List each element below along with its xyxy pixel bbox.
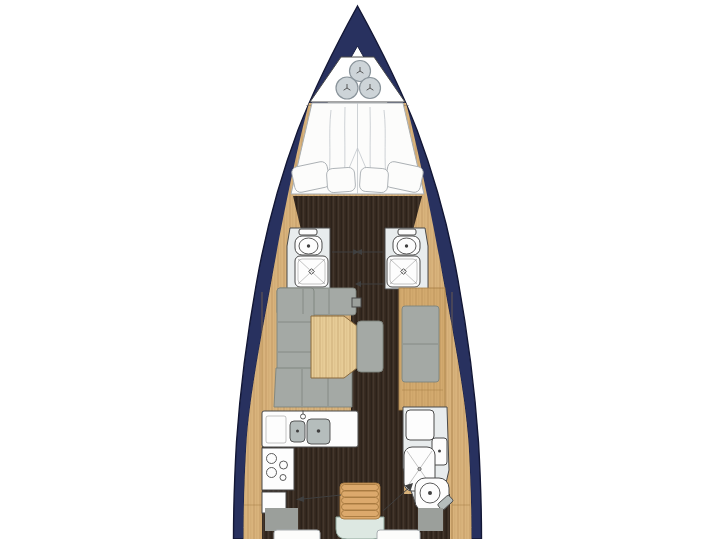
galley-stove	[262, 448, 294, 490]
yacht-layout-plan	[0, 0, 720, 539]
galley-sink-small-drain	[296, 430, 299, 433]
aft-toilet-drain	[428, 491, 432, 495]
step-5	[342, 511, 379, 517]
starboard-toilet-tank	[398, 229, 416, 235]
yacht-floorplan-page	[0, 0, 720, 539]
port-aft-locker	[265, 508, 298, 531]
step-4	[342, 504, 379, 510]
starboard-toilet-drain	[405, 244, 408, 247]
starboard-aft-mattress	[377, 530, 420, 539]
step-3	[342, 498, 379, 504]
starboard-head	[385, 228, 428, 289]
starboard-aft-locker	[418, 508, 443, 531]
step-1	[342, 485, 379, 491]
pillow-port-inner	[326, 167, 356, 193]
aft-head-cabinet	[406, 410, 434, 440]
forward-cabin	[291, 103, 425, 194]
pillow-starboard-inner	[359, 167, 389, 193]
salon-table-grain	[311, 316, 357, 378]
port-toilet-tank	[299, 229, 317, 235]
salon-stool	[357, 321, 383, 372]
mast-foot	[352, 298, 361, 307]
port-head	[287, 228, 330, 289]
aft-head-sink-drain	[438, 450, 441, 453]
step-2	[342, 491, 379, 497]
port-toilet-drain	[307, 244, 310, 247]
galley-sink-large-drain	[317, 429, 321, 433]
port-aft-mattress	[274, 530, 320, 539]
